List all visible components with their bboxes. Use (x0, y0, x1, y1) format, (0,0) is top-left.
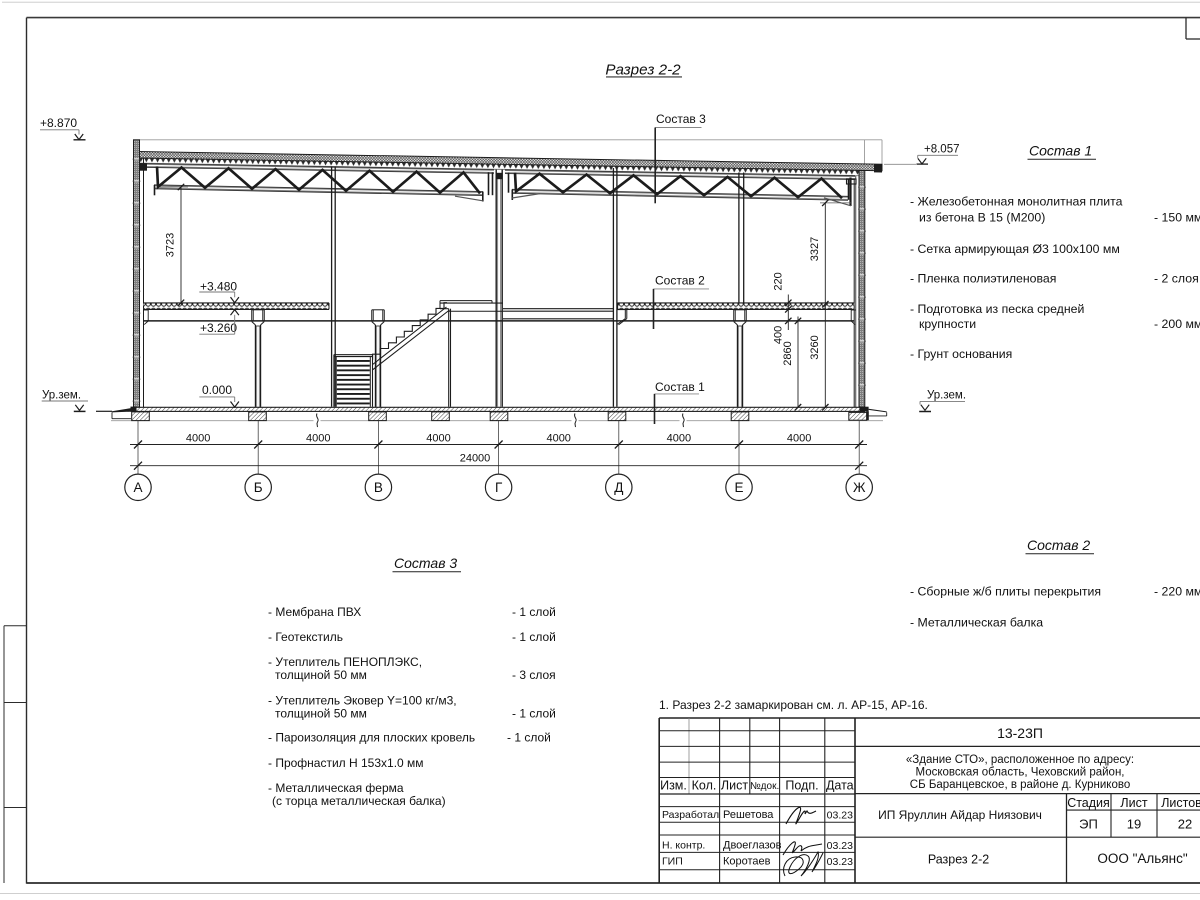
svg-text:Г: Г (495, 480, 503, 495)
svg-text:3327: 3327 (809, 237, 821, 261)
svg-text:А: А (133, 480, 142, 495)
svg-text:крупности: крупности (919, 317, 976, 331)
svg-text:4000: 4000 (546, 432, 570, 444)
svg-text:Лист: Лист (1120, 796, 1147, 810)
svg-text:ИП Яруллин Айдар Ниязович: ИП Яруллин Айдар Ниязович (878, 808, 1042, 822)
svg-text:- 1 слой: - 1 слой (512, 706, 556, 720)
svg-text:- Пленка полиэтиленовая: - Пленка полиэтиленовая (910, 272, 1056, 286)
svg-text:- Профнастил Н 153х1.0 мм: - Профнастил Н 153х1.0 мм (268, 756, 424, 770)
svg-text:Дата: Дата (826, 779, 854, 793)
svg-text:Коротаев: Коротаев (723, 856, 771, 868)
svg-text:220: 220 (773, 272, 785, 290)
svg-text:Б: Б (254, 480, 263, 495)
svg-text:Д: Д (614, 480, 623, 495)
svg-text:Ж: Ж (853, 480, 866, 495)
svg-text:+8.057: +8.057 (924, 143, 960, 155)
svg-text:- Железобетонная монолитная п: - Железобетонная монолитная плита (910, 194, 1123, 208)
svg-text:Ур.зем.: Ур.зем. (42, 389, 81, 401)
svg-text:- Сборные ж/б плиты перекрытия: - Сборные ж/б плиты перекрытия (910, 584, 1101, 598)
svg-text:СБ Баранцевское, в районе д. К: СБ Баранцевское, в районе д. Курниково (910, 779, 1130, 791)
svg-text:Подп.: Подп. (785, 779, 818, 793)
svg-text:Лист: Лист (721, 779, 748, 793)
svg-text:4000: 4000 (426, 432, 450, 444)
svg-text:- Утеплитель Эковер Y=100 кг/м: - Утеплитель Эковер Y=100 кг/м3, (268, 693, 457, 707)
svg-text:- 3 слоя: - 3 слоя (512, 668, 556, 682)
svg-text:Разрез 2-2: Разрез 2-2 (605, 61, 681, 78)
svg-text:Состав 3: Состав 3 (394, 555, 457, 571)
svg-text:(с торца металлическая балка): (с торца металлическая балка) (272, 794, 446, 808)
svg-text:Решетова: Решетова (723, 809, 774, 821)
svg-text:из бетона В 15 (М200): из бетона В 15 (М200) (919, 211, 1045, 225)
svg-text:+3.260: +3.260 (200, 321, 237, 335)
svg-text:- Металлическая ферма: - Металлическая ферма (268, 781, 404, 795)
svg-text:толщиной 50 мм: толщиной 50 мм (275, 706, 367, 720)
svg-text:- 200 мм: - 200 мм (1154, 317, 1200, 331)
svg-text:13-23П: 13-23П (997, 725, 1043, 741)
svg-text:19: 19 (1127, 817, 1141, 832)
svg-text:4000: 4000 (186, 432, 210, 444)
svg-text:Н. контр.: Н. контр. (662, 839, 705, 851)
svg-text:- Подготовка из песка средней: - Подготовка из песка средней (910, 302, 1084, 316)
svg-text:- 2 слоя: - 2 слоя (1154, 272, 1199, 286)
svg-text:Двоеглазов: Двоеглазов (723, 839, 782, 851)
svg-text:- Геотекстиль: - Геотекстиль (268, 630, 343, 644)
svg-text:Состав 2: Состав 2 (655, 274, 705, 288)
svg-text:Е: Е (734, 480, 743, 495)
svg-text:03.23: 03.23 (827, 810, 853, 822)
svg-text:1. Разрез 2-2 замаркирован см.: 1. Разрез 2-2 замаркирован см. л. АР-15,… (659, 698, 928, 712)
svg-text:- 1 слой: - 1 слой (507, 730, 551, 744)
svg-text:толщиной 50 мм: толщиной 50 мм (275, 668, 367, 682)
svg-text:2860: 2860 (782, 341, 794, 365)
svg-text:Московская область, Чеховский: Московская область, Чеховский район, (916, 767, 1125, 779)
svg-text:Разработал: Разработал (662, 809, 719, 821)
svg-text:Изм.: Изм. (660, 779, 687, 793)
svg-text:0.000: 0.000 (202, 383, 232, 397)
svg-text:«Здание СТО», расположенное по: «Здание СТО», расположенное по адресу: (906, 754, 1134, 766)
svg-text:- Утеплитель ПЕНОПЛЭКС,: - Утеплитель ПЕНОПЛЭКС, (268, 655, 422, 669)
svg-text:03.23: 03.23 (827, 840, 853, 852)
svg-text:В: В (374, 480, 383, 495)
svg-text:ООО "Альянс": ООО "Альянс" (1097, 851, 1187, 866)
svg-text:№док.: №док. (750, 781, 779, 792)
svg-text:3723: 3723 (165, 233, 177, 257)
svg-text:4000: 4000 (787, 432, 811, 444)
svg-text:Кол.: Кол. (692, 779, 717, 793)
svg-text:+8.870: +8.870 (40, 116, 77, 130)
svg-text:- 150 мм: - 150 мм (1154, 211, 1200, 225)
svg-text:- Металлическая балка: - Металлическая балка (910, 615, 1043, 629)
svg-text:- 1 слой: - 1 слой (512, 605, 556, 619)
svg-text:- Пароизоляция для плоских кро: - Пароизоляция для плоских кровель (268, 730, 475, 744)
svg-text:Состав 1: Состав 1 (1029, 143, 1092, 159)
svg-text:- Сетка армирующая Ø3 100х100: - Сетка армирующая Ø3 100х100 мм (910, 242, 1120, 256)
svg-text:- 220 мм: - 220 мм (1154, 584, 1200, 598)
svg-text:Состав 1: Состав 1 (655, 380, 705, 394)
svg-text:ЭП: ЭП (1079, 817, 1098, 832)
svg-text:03.23: 03.23 (827, 856, 853, 868)
svg-text:Стадия: Стадия (1067, 796, 1110, 810)
svg-text:22: 22 (1178, 817, 1192, 832)
svg-text:- Грунт основания: - Грунт основания (910, 347, 1012, 361)
svg-text:4000: 4000 (667, 432, 691, 444)
svg-text:3260: 3260 (809, 335, 821, 359)
svg-text:ГИП: ГИП (662, 856, 683, 868)
svg-text:Состав 3: Состав 3 (656, 112, 706, 126)
svg-text:Разрез 2-2: Разрез 2-2 (928, 853, 989, 867)
svg-text:Ур.зем.: Ур.зем. (927, 390, 966, 402)
svg-text:Листов: Листов (1161, 796, 1200, 810)
svg-text:24000: 24000 (460, 453, 491, 465)
svg-text:- 1 слой: - 1 слой (512, 630, 556, 644)
svg-text:Состав 2: Состав 2 (1027, 537, 1090, 553)
svg-text:+3.480: +3.480 (200, 279, 237, 293)
svg-text:4000: 4000 (306, 432, 330, 444)
svg-text:- Мембрана ПВХ: - Мембрана ПВХ (268, 605, 361, 619)
